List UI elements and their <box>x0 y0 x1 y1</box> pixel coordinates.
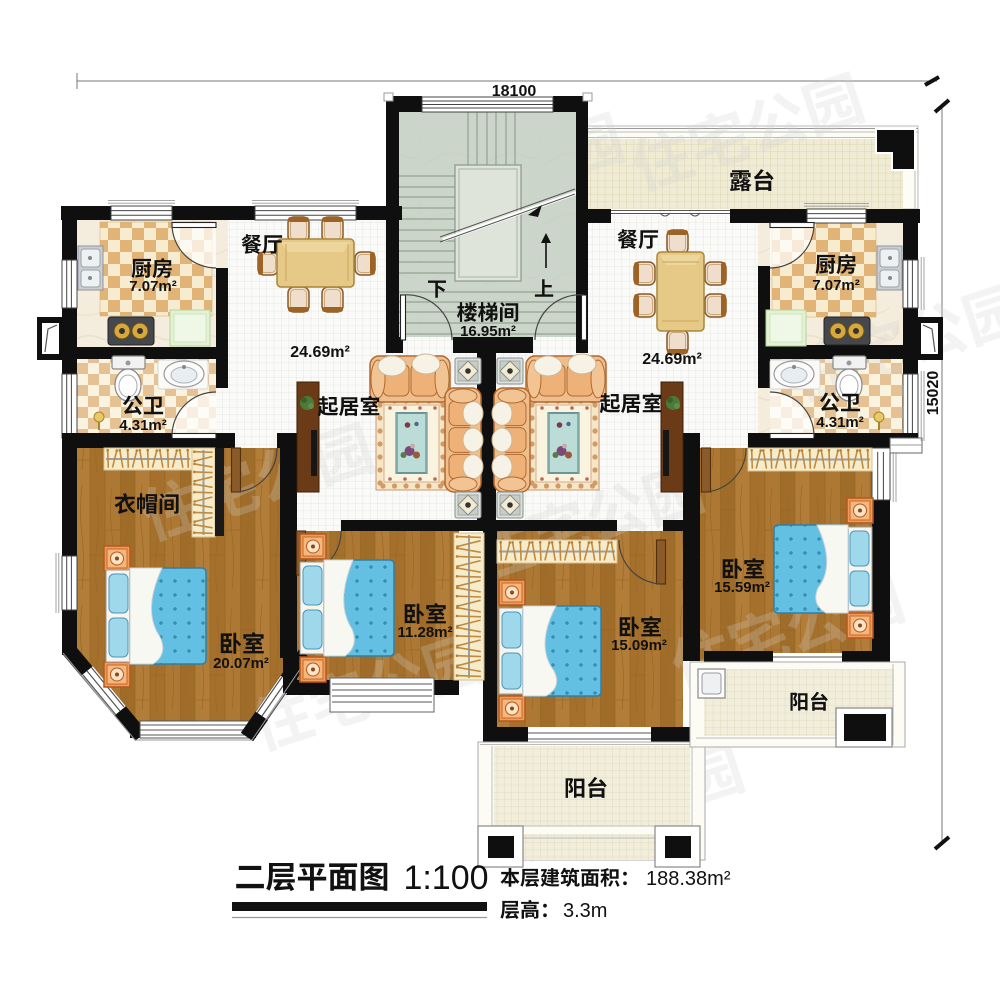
svg-text:4.31m²: 4.31m² <box>119 417 167 434</box>
svg-text:18100: 18100 <box>492 83 537 100</box>
svg-text:11.28m²: 11.28m² <box>397 624 452 641</box>
svg-text:24.69m²: 24.69m² <box>642 351 702 368</box>
svg-text:1:100: 1:100 <box>403 859 488 897</box>
svg-text:20.07m²: 20.07m² <box>213 655 269 672</box>
svg-text:15.59m²: 15.59m² <box>714 579 770 596</box>
svg-text:3.3m: 3.3m <box>563 900 607 922</box>
svg-text:15020: 15020 <box>925 371 942 416</box>
svg-text:24.69m²: 24.69m² <box>290 344 350 361</box>
svg-text:188.38m²: 188.38m² <box>646 868 731 890</box>
svg-text:15.09m²: 15.09m² <box>611 637 667 654</box>
svg-text:7.07m²: 7.07m² <box>812 277 860 294</box>
svg-text:7.07m²: 7.07m² <box>129 278 177 295</box>
svg-text:4.31m²: 4.31m² <box>816 414 864 431</box>
